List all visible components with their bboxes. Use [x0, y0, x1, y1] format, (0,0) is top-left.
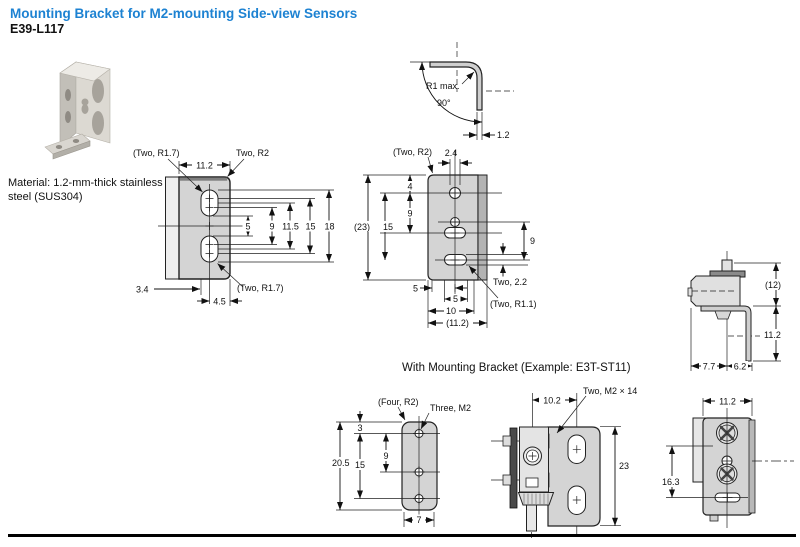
dim-23: (23) [354, 222, 370, 232]
dim-12: (12) [765, 280, 781, 290]
label-two-r17-bottom: (Two, R1.7) [237, 283, 284, 293]
drawing-plate: (Four, R2) Three, M2 20.5 15 3 9 7 [328, 388, 486, 540]
dim-5: 5 [245, 222, 250, 232]
label-two-2-2: Two, 2.2 [493, 277, 527, 287]
dim-15: 15 [383, 222, 393, 232]
dim-10: 10 [446, 306, 456, 316]
dim-5-slot: 5 [453, 294, 458, 304]
dim-11-2: 11.2 [719, 397, 736, 407]
drawing-mounted-rear: 11.2 16.3 [648, 388, 800, 540]
dim-9: 9 [383, 451, 388, 461]
plate-geometry [336, 416, 440, 527]
dim-10-2: 10.2 [543, 396, 561, 406]
sensor-cable [527, 505, 537, 531]
page-bottom-rule [8, 534, 796, 537]
bracket-photo [60, 62, 110, 147]
dim-7: 7 [416, 515, 421, 525]
dim-9: 9 [269, 222, 274, 232]
dim-6-2: 6.2 [734, 362, 747, 372]
dim-5-offset: 5 [413, 284, 418, 294]
dim-11-2: 11.2 [196, 161, 213, 171]
label-two-r2: (Two, R2) [393, 147, 432, 157]
dim-9-left: 9 [407, 209, 412, 219]
drawing-mounted-front: 10.2 Two, M2 × 14 23 [483, 383, 643, 543]
dim-1-2: 1.2 [497, 130, 510, 140]
label-two-r17-top: (Two, R1.7) [133, 148, 180, 158]
dim-4-5: 4.5 [213, 297, 226, 307]
datasheet-page: Mounting Bracket for M2-mounting Side-vi… [0, 0, 800, 547]
label-two-r1-1: (Two, R1.1) [490, 299, 537, 309]
dim-2-4: 2.4 [445, 148, 458, 158]
dim-7-7: 7.7 [703, 362, 716, 372]
mounted-front-geometry [491, 393, 621, 538]
dim-23: 23 [619, 461, 629, 471]
dim-15: 15 [305, 222, 315, 232]
dim-4: 4 [407, 182, 412, 192]
drawing-front-view: (Two, R2) 2.4 (23) 15 4 9 9 Two, 2.2 (Tw… [350, 140, 590, 335]
dim-11-2: 11.2 [764, 330, 781, 340]
drawing-mounted-side: (12) 11.2 7.7 6.2 [648, 245, 800, 377]
page-title: Mounting Bracket for M2-mounting Side-vi… [10, 6, 357, 21]
model-number: E39-L117 [10, 22, 64, 36]
label-r1-max: R1 max. [426, 81, 460, 91]
dim-11-2-total: (11.2) [446, 318, 469, 328]
drawing-bend-section: R1 max. 90° 1.2 [398, 40, 523, 150]
dim-18: 18 [324, 222, 334, 232]
dim-3: 3 [357, 423, 362, 433]
label-90deg: 90° [437, 98, 451, 108]
label-two-r2: Two, R2 [236, 148, 269, 158]
dim-9-right: 9 [530, 236, 535, 246]
mounted-side-geometry [688, 251, 781, 371]
dim-3-4: 3.4 [136, 285, 149, 295]
section-heading: With Mounting Bracket (Example: E3T-ST11… [402, 362, 631, 374]
drawing-side-flat-view: (Two, R1.7) 11.2 Two, R2 5 9 11.5 15 18 … [130, 140, 358, 312]
mounted-rear-geometry [666, 398, 794, 528]
dim-20-5: 20.5 [332, 458, 350, 468]
label-four-r2: (Four, R2) [378, 397, 419, 407]
label-two-m2x14: Two, M2 × 14 [583, 386, 637, 396]
dim-15: 15 [355, 460, 365, 470]
label-three-m2: Three, M2 [430, 403, 471, 413]
dim-11-5: 11.5 [282, 222, 299, 232]
dim-16-3: 16.3 [662, 477, 680, 487]
